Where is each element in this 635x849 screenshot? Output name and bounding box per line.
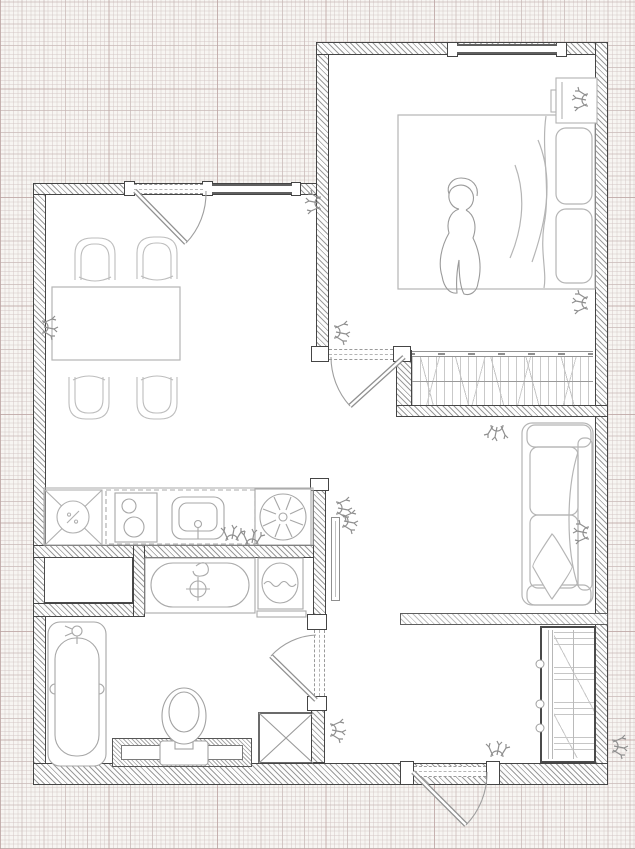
closet-hinges (536, 660, 544, 732)
refrigerator (45, 490, 102, 545)
dining-table (52, 287, 180, 360)
vanity-tub (145, 558, 255, 613)
water-heater (257, 558, 306, 617)
kitchen-sink (172, 497, 224, 539)
nightstand (551, 78, 597, 123)
double-bed (398, 115, 595, 289)
fixture-layer (0, 0, 635, 849)
entrance-door (413, 772, 487, 825)
floor-plan-sheet (0, 0, 635, 849)
toilet (160, 688, 208, 765)
shaft-cross (259, 713, 313, 763)
sofa (522, 423, 593, 605)
entry-door (135, 191, 206, 243)
bathroom-door (271, 635, 316, 700)
dining-chairs (69, 237, 177, 419)
cooktop (115, 493, 157, 542)
person-figure (440, 178, 480, 295)
bedroom-door (331, 357, 404, 406)
bathtub (48, 622, 106, 766)
washing-machine (255, 489, 311, 545)
